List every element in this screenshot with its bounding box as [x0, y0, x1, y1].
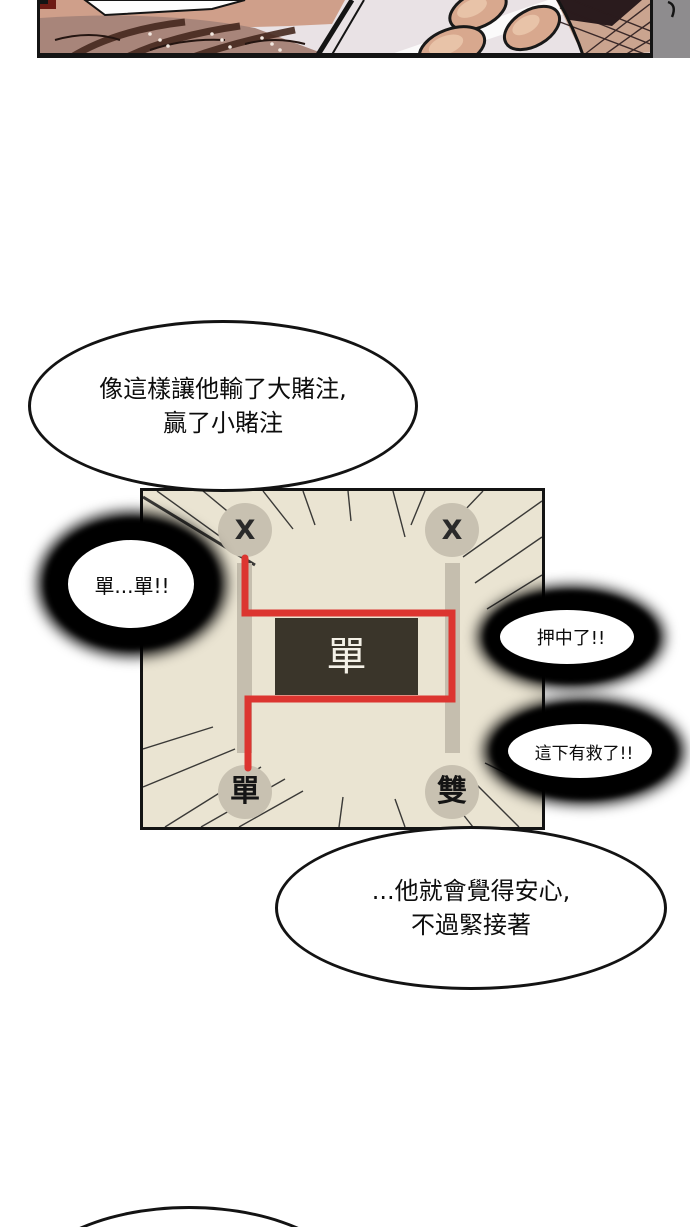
top-artwork-strip — [0, 0, 690, 64]
gray-margin — [653, 0, 690, 64]
scream-bubble-right-bottom: 這下有救了!! — [484, 698, 684, 804]
comic-page: X X 單 雙 單 像這樣讓他輸了大賭注, 贏了小賭注 單...單!! 押中了! — [0, 0, 690, 1227]
scream-text: 單...單!! — [38, 512, 226, 656]
speech-bubble-bottom: ...他就會覺得安心, 不過緊接著 — [275, 826, 667, 990]
speech-line: ...他就會覺得安心, — [372, 874, 571, 908]
speech-line: 不過緊接著 — [411, 908, 531, 942]
speech-line: 像這樣讓他輸了大賭注, — [99, 372, 347, 406]
speech-line: 贏了小賭注 — [163, 406, 283, 440]
scream-text: 押中了!! — [478, 586, 664, 688]
speech-bubble-partial — [20, 1206, 358, 1227]
scream-bubble-left: 單...單!! — [38, 512, 226, 656]
scream-bubble-right-top: 押中了!! — [478, 586, 664, 688]
scream-text: 這下有救了!! — [484, 698, 684, 804]
speech-bubble-top: 像這樣讓他輸了大賭注, 贏了小賭注 — [28, 320, 418, 492]
